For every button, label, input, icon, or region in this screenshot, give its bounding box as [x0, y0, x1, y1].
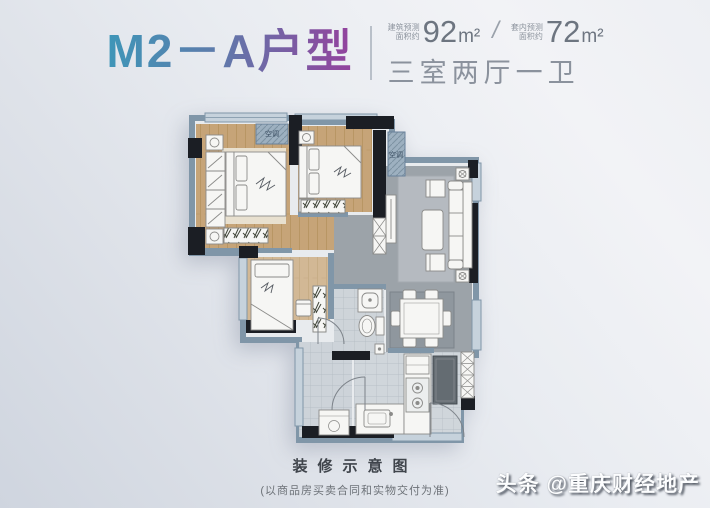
living-window-bottom — [472, 300, 481, 350]
ac-label-right: 空调 — [389, 150, 403, 159]
area-primary-label-line2: 面积约 — [396, 32, 420, 42]
area-separator: / — [492, 17, 499, 45]
balcony-window — [295, 348, 303, 426]
watermark-prefix: 头条 — [496, 473, 540, 496]
area-primary-value: 92 — [423, 16, 457, 47]
area-secondary-value: 72 — [546, 16, 580, 47]
area-secondary-label-line2: 面积约 — [519, 32, 543, 42]
area-secondary-label: 套内预测 面积约 — [511, 23, 543, 42]
bedroom3-window — [239, 258, 247, 320]
watermark-handle: @重庆财经地产 — [547, 473, 700, 496]
area-primary-unit: m² — [458, 27, 480, 46]
spec-block: 建筑预测 面积约 92 m² / 套内预测 面积约 72 m² 三室两厅一卫 — [388, 16, 604, 90]
header: M2－A户型 建筑预测 面积约 92 m² / 套内预测 面积约 72 m² 三… — [0, 16, 710, 90]
room-layout-text: 三室两厅一卫 — [388, 51, 604, 90]
unit-title: M2－A户型 — [106, 28, 353, 78]
floor-plan: 空调 空调 — [170, 100, 500, 460]
poster: M2－A户型 建筑预测 面积约 92 m² / 套内预测 面积约 72 m² 三… — [0, 0, 710, 508]
area-secondary-unit: m² — [581, 27, 603, 46]
watermark: 头条 @重庆财经地产 — [496, 468, 700, 498]
area-row: 建筑预测 面积约 92 m² / 套内预测 面积约 72 m² — [388, 16, 604, 47]
area-primary-label: 建筑预测 面积约 — [388, 23, 420, 42]
ac-label-top: 空调 — [265, 129, 279, 138]
balcony-fixtures — [319, 410, 349, 435]
area-primary-label-line1: 建筑预测 — [388, 23, 420, 33]
area-secondary-label-line1: 套内预测 — [511, 23, 543, 33]
header-divider — [370, 26, 372, 80]
